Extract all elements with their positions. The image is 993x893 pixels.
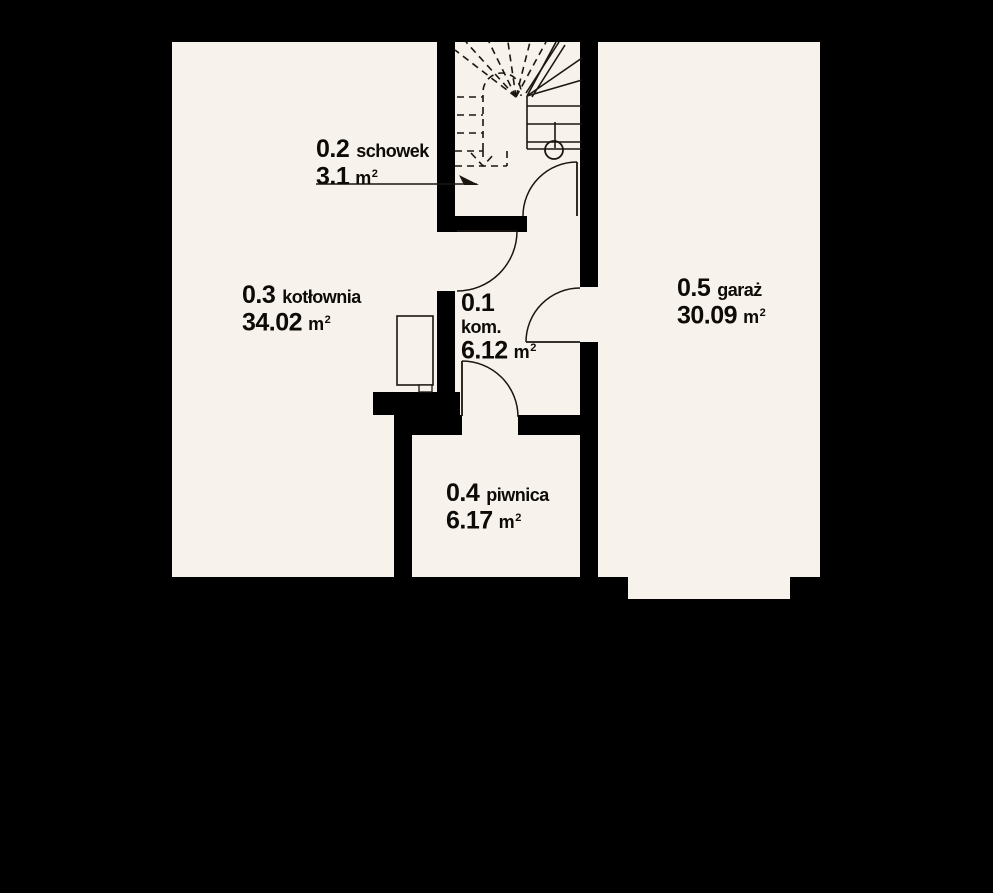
room-area: 3.1	[316, 162, 349, 190]
room-name: schowek	[356, 141, 429, 161]
wall-piwnica-top-left	[412, 415, 462, 435]
room-label-garaz: 0.5garaż 30.09m2	[677, 277, 765, 330]
area-unit-sup: 2	[515, 512, 521, 524]
room-label-kom: 0.1 kom. 6.12m2	[461, 292, 536, 365]
room-number: 0.3	[242, 281, 275, 309]
room-number: 0.2	[316, 135, 349, 163]
room-area: 34.02	[242, 308, 302, 336]
room-area: 30.09	[677, 301, 737, 329]
room-label-schowek: 0.2schowek 3.1m2	[316, 138, 429, 191]
wall-piwnica-left	[394, 415, 412, 577]
boiler-symbol	[397, 316, 433, 392]
boiler-body	[397, 316, 433, 385]
area-unit: m	[499, 512, 515, 532]
area-unit: m	[743, 307, 759, 327]
wall-stair-bottom	[437, 216, 527, 232]
boiler-foot	[419, 385, 432, 392]
wall-piwnica-top-right	[518, 415, 582, 435]
room-number: 0.5	[677, 274, 710, 302]
area-unit-sup: 2	[325, 314, 331, 326]
area-unit: m	[514, 342, 530, 362]
floor-plan: 0.2schowek 3.1m2 0.3kotłownia 34.02m2 0.…	[0, 0, 993, 893]
wall-garage-upper	[580, 42, 598, 287]
area-unit: m	[308, 314, 324, 334]
room-name: piwnica	[486, 485, 549, 505]
area-unit-sup: 2	[372, 168, 378, 180]
room-label-kotlownia: 0.3kotłownia 34.02m2	[242, 284, 361, 337]
room-number: 0.4	[446, 479, 479, 507]
garage-entry-recess	[628, 577, 790, 599]
area-unit-sup: 2	[760, 307, 766, 319]
room-label-piwnica: 0.4piwnica 6.17m2	[446, 482, 549, 535]
room-number: 0.1	[461, 289, 494, 317]
room-name: garaż	[717, 280, 762, 300]
wall-boiler-pier	[373, 392, 460, 415]
room-area: 6.12	[461, 336, 508, 364]
wall-garage-lower	[580, 342, 598, 577]
room-area: 6.17	[446, 506, 493, 534]
area-unit-sup: 2	[530, 342, 536, 354]
room-name: kom.	[461, 317, 501, 337]
wall-stair-left	[437, 42, 455, 232]
area-unit: m	[355, 168, 371, 188]
floor-plan-drawing	[0, 0, 993, 893]
room-name: kotłownia	[282, 287, 361, 307]
